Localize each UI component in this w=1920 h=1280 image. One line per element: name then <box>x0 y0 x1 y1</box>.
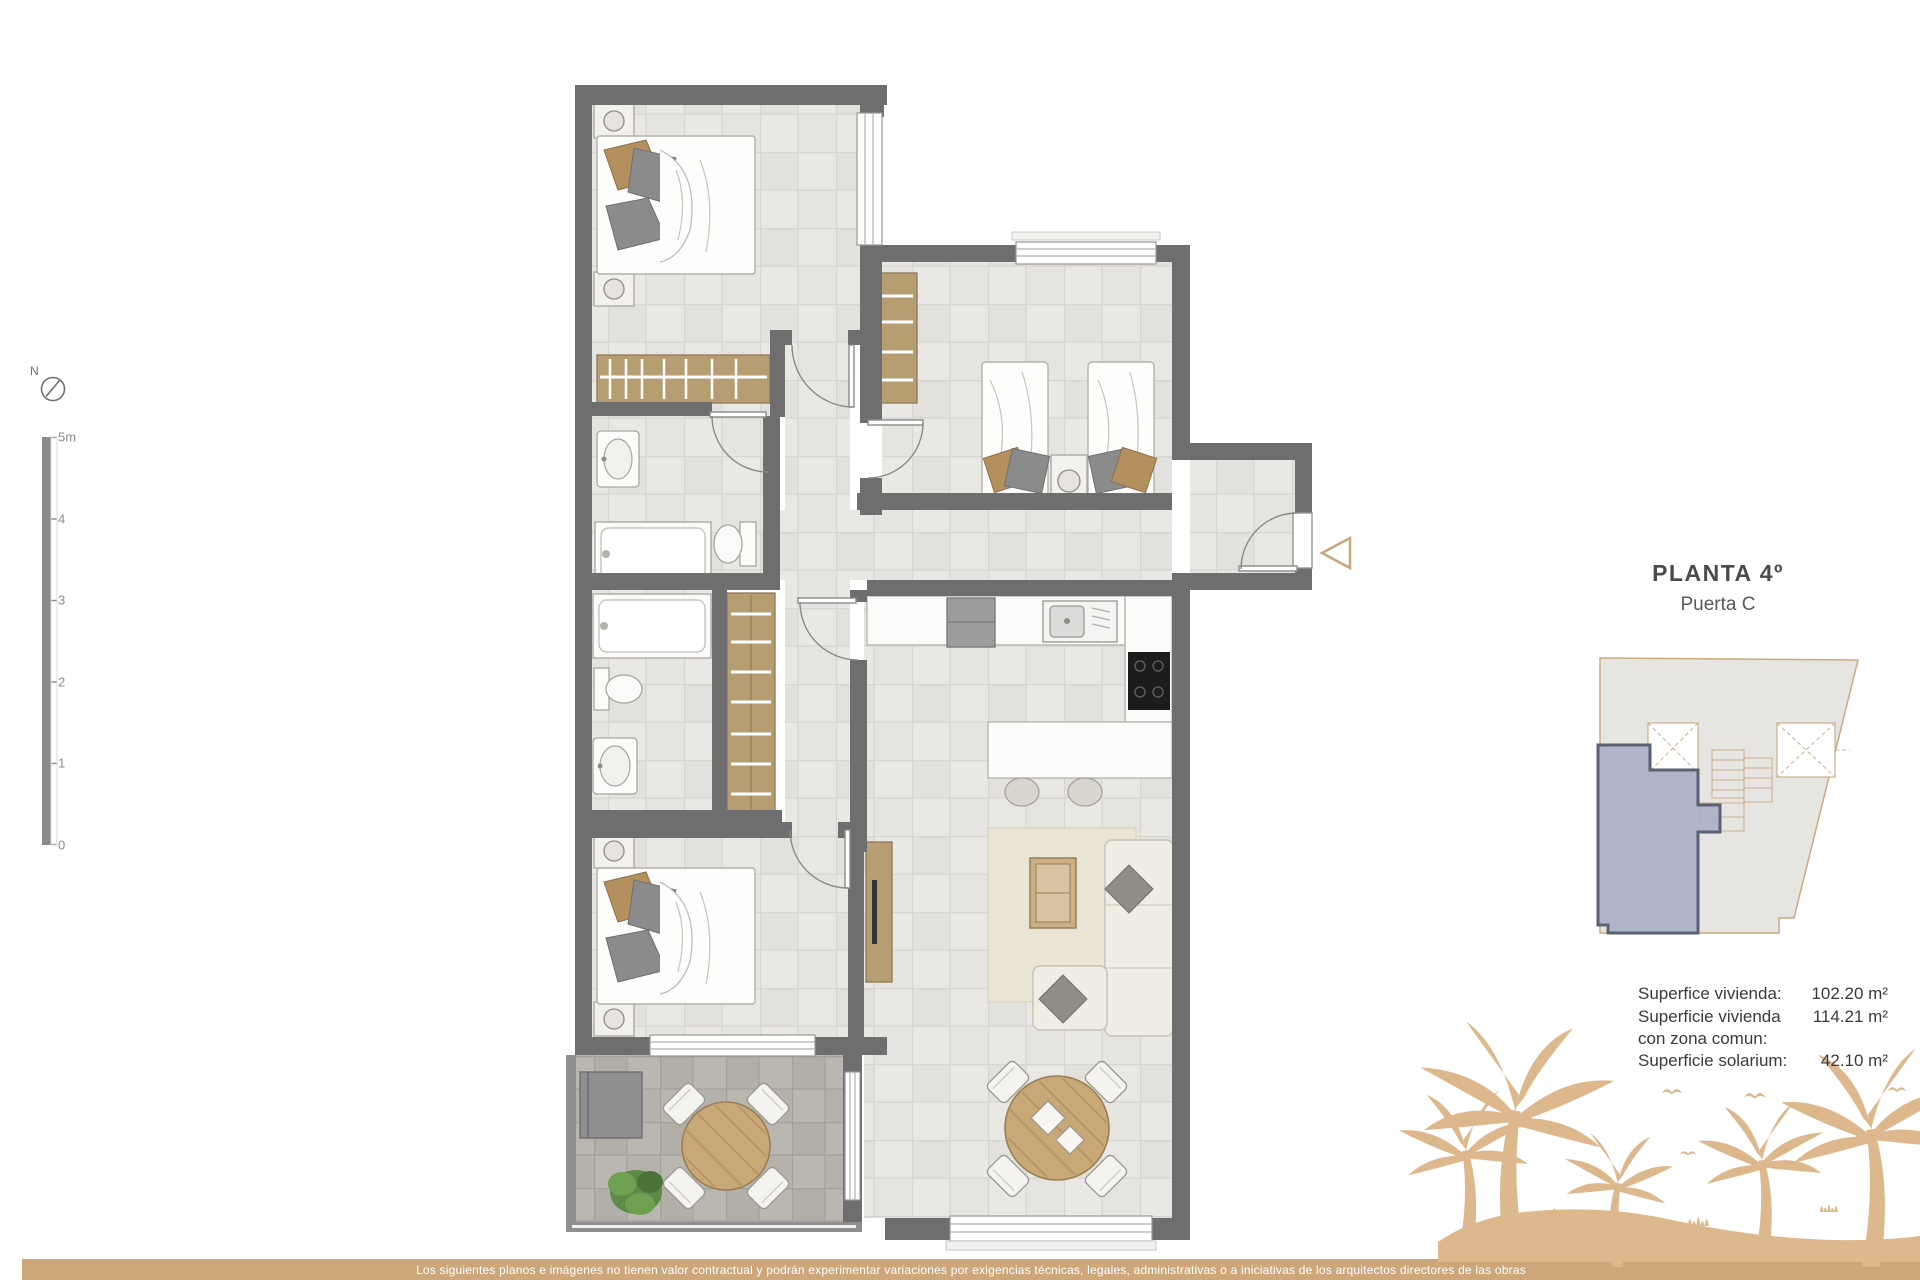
master-bedroom-furniture <box>594 104 770 403</box>
plan-title-block: PLANTA 4º Puerta C <box>1598 560 1838 616</box>
lamp <box>604 111 624 131</box>
kitchen-island <box>988 722 1172 778</box>
scale-label-3: 3 <box>58 593 65 608</box>
scale-label-5m: 5m <box>58 430 76 445</box>
brochure-page: N 5m 4 3 2 1 0 PLANTA 4º Puerta C Superf… <box>0 0 1920 1280</box>
wardrobe <box>597 355 770 403</box>
lamp <box>604 1009 624 1029</box>
bird-icon <box>1662 1089 1682 1094</box>
area-value: 114.21 m² <box>1813 1006 1888 1050</box>
compass-north-label: N <box>30 364 39 378</box>
scale-label-1: 1 <box>58 756 65 771</box>
lamp <box>604 841 624 861</box>
corridor-closet <box>727 593 775 820</box>
entrance-arrow-icon <box>1322 538 1350 568</box>
scale-bar <box>42 437 57 845</box>
scale-label-2: 2 <box>58 675 65 690</box>
lightwell <box>1648 723 1698 773</box>
bird-icon <box>1888 1087 1906 1092</box>
compass-icon <box>42 378 65 401</box>
cooktop <box>1128 652 1170 710</box>
surface-areas-block: Superfice vivienda: 102.20 m² Superficie… <box>1638 983 1888 1073</box>
area-value: 102.20 m² <box>1811 983 1888 1005</box>
area-value: 42.10 m² <box>1821 1050 1888 1072</box>
footer-disclaimer: Los siguientes planos e imágenes no tien… <box>22 1259 1920 1280</box>
area-row: Superficie vivienda con zona comun: 114.… <box>1638 1006 1888 1050</box>
footer-disclaimer-text: Los siguientes planos e imágenes no tien… <box>416 1263 1526 1277</box>
window <box>1012 232 1160 264</box>
area-row: Superficie solarium: 42.10 m² <box>1638 1050 1888 1072</box>
bird-icon <box>1680 1151 1696 1155</box>
area-label: Superfice vivienda: <box>1638 983 1811 1005</box>
bar-stool <box>1005 778 1039 806</box>
page-title: PLANTA 4º <box>1598 560 1838 587</box>
grass-icon <box>1820 1205 1838 1212</box>
scale-label-0: 0 <box>58 838 65 853</box>
sofa <box>1105 840 1173 1036</box>
lamp <box>604 279 624 299</box>
area-label: Superficie vivienda con zona comun: <box>1638 1006 1813 1050</box>
floor-plan-canvas <box>0 0 1920 1280</box>
area-label: Superficie solarium: <box>1638 1050 1821 1072</box>
bbq-unit <box>580 1072 642 1138</box>
lamp <box>1058 470 1080 492</box>
window <box>946 1216 1156 1250</box>
scale-label-4: 4 <box>58 512 65 527</box>
window <box>845 1072 860 1200</box>
grass-icon <box>1545 1208 1565 1216</box>
tv <box>872 880 877 944</box>
page-subtitle: Puerta C <box>1598 594 1838 616</box>
dining-area-furniture <box>985 1059 1128 1198</box>
key-plan <box>1598 658 1858 933</box>
tv-console <box>866 842 892 982</box>
bar-stool <box>1068 778 1102 806</box>
palm-tree-icon <box>1781 1048 1920 1267</box>
window <box>857 113 882 245</box>
area-row: Superfice vivienda: 102.20 m² <box>1638 983 1888 1005</box>
window <box>650 1035 815 1056</box>
grass-icon <box>1688 1218 1709 1226</box>
bird-icon <box>1744 1093 1766 1099</box>
